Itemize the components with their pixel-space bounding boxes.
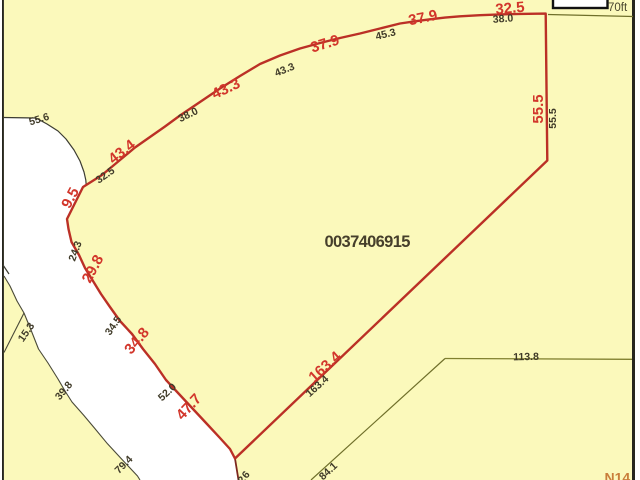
svg-text:55.5: 55.5 xyxy=(547,108,559,129)
svg-text:113.8: 113.8 xyxy=(513,351,539,363)
svg-text:0037406915: 0037406915 xyxy=(325,233,411,251)
svg-text:55.5: 55.5 xyxy=(530,94,547,123)
svg-text:70ft: 70ft xyxy=(608,2,628,14)
svg-text:32.5: 32.5 xyxy=(495,0,526,18)
svg-text:N14: N14 xyxy=(605,470,631,480)
